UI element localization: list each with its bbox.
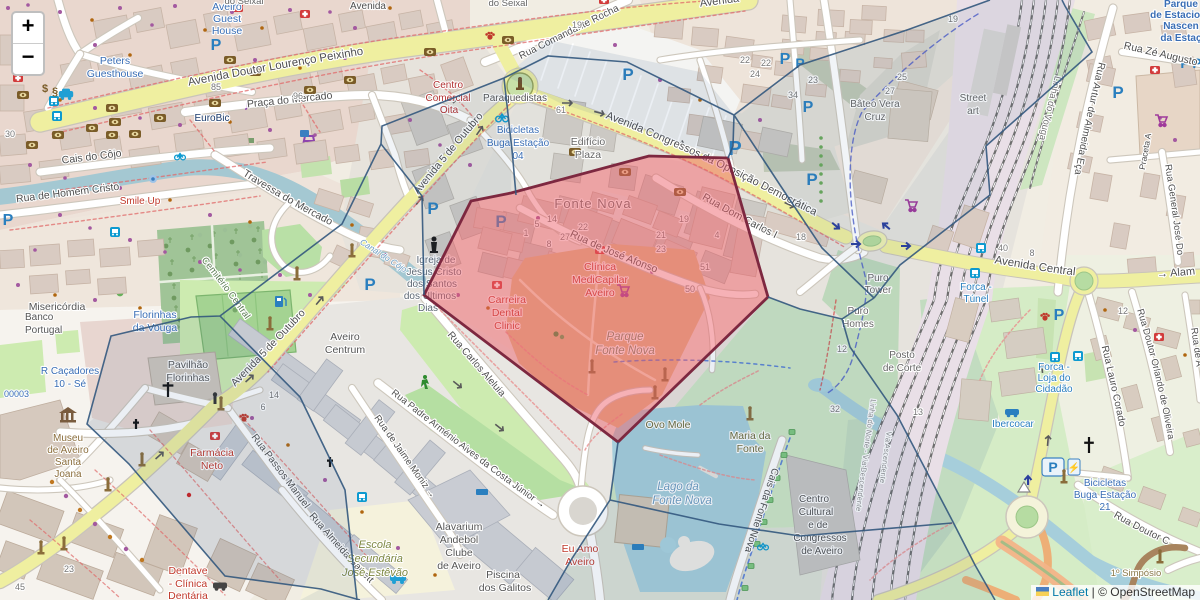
svg-text:Posto: Posto — [889, 350, 915, 361]
svg-text:Banco: Banco — [25, 312, 54, 323]
svg-text:Forca -: Forca - — [960, 282, 992, 293]
svg-text:Cidadão: Cidadão — [1035, 384, 1073, 395]
svg-text:85: 85 — [211, 82, 221, 92]
svg-text:Bicicletas: Bicicletas — [1084, 478, 1126, 489]
svg-text:18: 18 — [796, 232, 806, 242]
svg-text:Joana: Joana — [54, 469, 82, 480]
svg-text:dos Galitos: dos Galitos — [479, 582, 532, 594]
svg-text:P: P — [780, 51, 791, 68]
svg-text:61: 61 — [556, 105, 566, 115]
svg-text:$: $ — [42, 83, 48, 95]
svg-text:Dentave: Dentave — [168, 565, 207, 577]
svg-text:Smile Up: Smile Up — [120, 196, 161, 207]
svg-text:P: P — [1054, 307, 1065, 324]
svg-text:de Corte: de Corte — [883, 363, 922, 374]
svg-text:45: 45 — [15, 582, 25, 592]
svg-text:P: P — [211, 37, 222, 54]
svg-text:Homes: Homes — [842, 319, 874, 330]
svg-text:Edifício: Edifício — [571, 136, 606, 148]
svg-text:Parque: Parque — [1164, 0, 1198, 10]
svg-text:Santa: Santa — [55, 457, 82, 468]
svg-text:Túnel: Túnel — [963, 294, 988, 305]
svg-text:12: 12 — [1118, 306, 1128, 316]
svg-text:House: House — [212, 25, 243, 37]
svg-text:Avenida: Avenida — [350, 1, 386, 12]
svg-text:de Aveiro: de Aveiro — [47, 445, 89, 456]
svg-text:do Seixal: do Seixal — [488, 0, 527, 9]
svg-text:Peters: Peters — [100, 55, 130, 67]
svg-text:Alavarium: Alavarium — [436, 521, 483, 533]
svg-text:40: 40 — [998, 243, 1008, 253]
svg-text:R Caçadores: R Caçadores — [41, 366, 99, 377]
svg-text:do Seixal: do Seixal — [224, 0, 263, 7]
svg-text:Buga Estação: Buga Estação — [1074, 490, 1137, 501]
svg-text:96: 96 — [293, 91, 303, 101]
svg-text:1º Simpósio: 1º Simpósio — [1111, 568, 1161, 579]
svg-text:⚡: ⚡ — [1068, 461, 1080, 474]
svg-text:19: 19 — [572, 20, 582, 30]
svg-text:Centrum: Centrum — [325, 344, 366, 356]
svg-text:00003: 00003 — [4, 389, 29, 399]
svg-text:da Estaç: da Estaç — [1160, 33, 1200, 44]
svg-text:Centro: Centro — [433, 80, 463, 91]
svg-text:23: 23 — [64, 564, 74, 574]
svg-text:Dentária: Dentária — [168, 590, 208, 600]
svg-text:Andebol: Andebol — [440, 534, 479, 546]
svg-text:Loja do: Loja do — [1038, 373, 1071, 384]
svg-text:22: 22 — [761, 58, 771, 68]
svg-text:30: 30 — [5, 129, 15, 139]
svg-text:Portugal: Portugal — [25, 325, 62, 336]
svg-text:Secundária: Secundária — [347, 553, 403, 565]
svg-text:Clube: Clube — [445, 547, 473, 559]
svg-text:P: P — [1048, 459, 1057, 475]
svg-text:EuroBic: EuroBic — [194, 113, 229, 124]
svg-text:Piscina: Piscina — [486, 569, 520, 581]
svg-text:P: P — [3, 212, 14, 229]
svg-text:8: 8 — [1029, 248, 1034, 258]
svg-text:Forca -: Forca - — [1038, 362, 1070, 373]
svg-text:Museu: Museu — [53, 433, 83, 444]
svg-text:Ibercocar: Ibercocar — [992, 419, 1034, 430]
svg-text:Florinhas: Florinhas — [133, 309, 176, 321]
svg-text:Misericórdia: Misericórdia — [29, 301, 86, 313]
svg-text:Nascen: Nascen — [1163, 21, 1199, 32]
svg-text:Guest: Guest — [213, 13, 241, 25]
svg-text:de Estaciona: de Estaciona — [1150, 10, 1200, 21]
svg-text:21: 21 — [1099, 502, 1111, 513]
svg-text:Aveiro: Aveiro — [330, 331, 360, 343]
svg-text:Plaza: Plaza — [575, 149, 601, 161]
svg-text:22: 22 — [740, 55, 750, 65]
svg-text:P: P — [1112, 83, 1123, 102]
svg-text:13: 13 — [913, 407, 923, 417]
svg-text:24: 24 — [750, 69, 760, 79]
svg-text:P: P — [364, 275, 375, 294]
svg-text:§: § — [52, 86, 58, 98]
svg-text:Escola: Escola — [358, 539, 391, 551]
svg-text:Guesthouse: Guesthouse — [87, 68, 144, 80]
svg-text:de Aveiro: de Aveiro — [437, 560, 481, 572]
svg-text:- Clínica: - Clínica — [169, 578, 208, 590]
svg-text:10 - Sé: 10 - Sé — [54, 379, 87, 390]
svg-text:04: 04 — [512, 151, 524, 162]
